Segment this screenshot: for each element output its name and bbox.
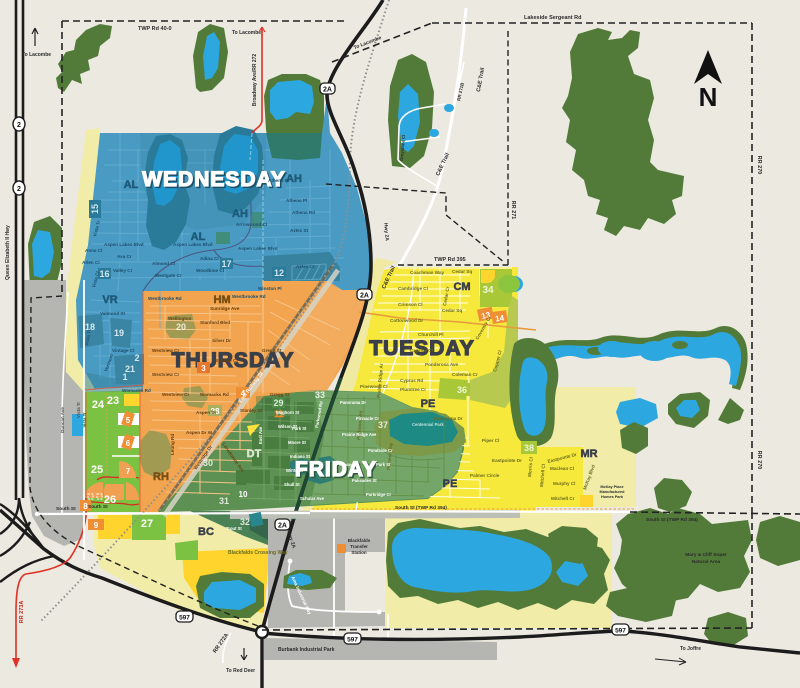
- svg-text:Moore St: Moore St: [288, 440, 307, 445]
- svg-text:Schular Ave: Schular Ave: [300, 496, 325, 501]
- svg-text:Vintage Cl: Vintage Cl: [112, 348, 134, 353]
- svg-text:To Lacombe: To Lacombe: [22, 52, 51, 58]
- svg-text:Sunrise Cl: Sunrise Cl: [215, 358, 238, 363]
- svg-text:TWP Rd 395: TWP Rd 395: [434, 257, 466, 263]
- svg-text:Womacks Rd: Womacks Rd: [122, 388, 151, 393]
- svg-text:Valmond St: Valmond St: [100, 311, 125, 316]
- svg-text:34: 34: [482, 285, 494, 296]
- svg-text:Ponderosa Ave: Ponderosa Ave: [425, 362, 459, 367]
- svg-text:20: 20: [176, 322, 186, 332]
- svg-text:2: 2: [17, 186, 21, 193]
- svg-text:South St (TWP Rd 394): South St (TWP Rd 394): [646, 517, 698, 523]
- svg-text:South St: South St: [56, 506, 76, 512]
- svg-text:PE: PE: [443, 478, 458, 490]
- svg-text:Sunridge Ave: Sunridge Ave: [210, 306, 240, 311]
- svg-text:McKay Place: McKay Place: [600, 485, 623, 489]
- svg-text:RR 271: RR 271: [510, 201, 516, 220]
- svg-text:AL: AL: [124, 179, 139, 191]
- svg-text:5: 5: [126, 416, 131, 425]
- svg-text:16: 16: [99, 269, 109, 279]
- svg-text:RH: RH: [153, 471, 169, 483]
- svg-text:Cottonwood Dr: Cottonwood Dr: [390, 318, 423, 323]
- svg-text:DT: DT: [247, 448, 262, 460]
- svg-text:Almond Ct: Almond Ct: [152, 261, 176, 266]
- svg-text:RR 273A: RR 273A: [19, 601, 25, 624]
- svg-text:Cyprus Rd: Cyprus Rd: [400, 378, 423, 383]
- svg-text:MR: MR: [580, 448, 597, 460]
- svg-text:12: 12: [274, 268, 284, 278]
- svg-text:597: 597: [615, 628, 626, 635]
- svg-text:BC: BC: [198, 526, 214, 538]
- svg-text:25: 25: [91, 464, 103, 476]
- svg-text:Station: Station: [351, 550, 367, 555]
- svg-text:VR: VR: [102, 294, 117, 306]
- svg-text:Westbrooke Rd: Westbrooke Rd: [148, 296, 182, 301]
- svg-text:AH: AH: [232, 208, 248, 220]
- svg-text:15: 15: [90, 204, 100, 214]
- svg-text:2: 2: [17, 122, 21, 129]
- svg-text:Manufactured: Manufactured: [600, 490, 626, 494]
- svg-text:Westview Cr: Westview Cr: [162, 392, 189, 397]
- svg-text:24: 24: [92, 399, 105, 411]
- svg-text:2A: 2A: [360, 293, 369, 300]
- svg-text:Blackfalds: Blackfalds: [348, 538, 371, 543]
- svg-text:Panorama Dr: Panorama Dr: [434, 416, 463, 421]
- svg-text:Burbank Industrial Park: Burbank Industrial Park: [278, 647, 335, 653]
- svg-text:Maclean Cl: Maclean Cl: [550, 466, 574, 471]
- svg-text:Anna Cl: Anna Cl: [85, 248, 102, 253]
- svg-text:CM: CM: [453, 281, 470, 293]
- svg-text:Shull St: Shull St: [284, 482, 300, 487]
- svg-text:Athena Rd: Athena Rd: [292, 210, 315, 215]
- svg-text:WEDNESDAY: WEDNESDAY: [142, 168, 286, 191]
- svg-text:Plumtree Cr: Plumtree Cr: [400, 387, 426, 392]
- svg-text:Palmer Circle: Palmer Circle: [470, 473, 500, 478]
- svg-text:Lakeside Sergeant Rd: Lakeside Sergeant Rd: [524, 15, 581, 21]
- svg-text:Park St: Park St: [376, 462, 391, 467]
- svg-text:Parkridge Cr: Parkridge Cr: [366, 492, 392, 497]
- svg-text:South St: South St: [88, 504, 108, 510]
- svg-text:Winto St: Winto St: [286, 468, 304, 473]
- svg-text:Broadway Ave/RR 272: Broadway Ave/RR 272: [252, 54, 258, 107]
- svg-text:TWP Rd 40-0: TWP Rd 40-0: [138, 26, 172, 32]
- svg-text:Athena Pl: Athena Pl: [286, 198, 307, 203]
- svg-text:Vista Tr: Vista Tr: [76, 402, 81, 418]
- svg-text:Wellington: Wellington: [168, 316, 192, 321]
- svg-text:Murphy Cl: Murphy Cl: [553, 481, 575, 486]
- svg-text:Homes Park: Homes Park: [601, 495, 624, 499]
- svg-text:Ava Cr: Ava Cr: [117, 254, 132, 259]
- svg-text:Waghorn St: Waghorn St: [276, 410, 300, 415]
- svg-text:37: 37: [378, 420, 388, 430]
- svg-text:38: 38: [524, 443, 534, 453]
- svg-text:Leung Rd: Leung Rd: [170, 434, 175, 455]
- svg-text:Mitchell Cr: Mitchell Cr: [551, 496, 575, 501]
- svg-text:Cedar Sq: Cedar Sq: [452, 269, 472, 274]
- svg-text:Arrowwood Cl: Arrowwood Cl: [236, 222, 267, 227]
- svg-text:Winston Pl: Winston Pl: [258, 286, 282, 291]
- svg-text:Coleman Cr: Coleman Cr: [452, 372, 478, 377]
- svg-text:Adina Cl: Adina Cl: [200, 256, 219, 261]
- svg-text:Duncan Ave: Duncan Ave: [60, 407, 65, 433]
- svg-text:Aspen Lakes Blvd: Aspen Lakes Blvd: [238, 246, 278, 251]
- svg-text:Wilson St: Wilson St: [278, 424, 298, 429]
- svg-text:Aspen Dr W: Aspen Dr W: [186, 430, 213, 435]
- svg-text:Blackfalds Crossing Way: Blackfalds Crossing Way: [228, 550, 288, 556]
- svg-text:Vista Tr: Vista Tr: [82, 412, 87, 427]
- svg-text:Aspen Dr: Aspen Dr: [196, 410, 217, 415]
- svg-text:Woodbine Cl: Woodbine Cl: [196, 268, 224, 273]
- svg-text:HM: HM: [213, 294, 230, 306]
- svg-text:Stanley St: Stanley St: [240, 408, 263, 413]
- svg-text:Indiana St: Indiana St: [290, 454, 311, 459]
- svg-text:2: 2: [134, 353, 139, 363]
- svg-text:9: 9: [94, 521, 99, 530]
- svg-text:29: 29: [273, 398, 283, 408]
- svg-text:East Ave: East Ave: [258, 426, 263, 444]
- svg-text:Eastpointe Dr: Eastpointe Dr: [492, 458, 522, 463]
- svg-text:Trout St: Trout St: [226, 526, 242, 531]
- svg-text:Stanford Blvd: Stanford Blvd: [200, 320, 230, 325]
- svg-text:PE: PE: [421, 398, 436, 410]
- svg-text:1: 1: [122, 372, 127, 382]
- svg-text:Gregg St: Gregg St: [270, 392, 290, 397]
- svg-text:Westview Cr: Westview Cr: [152, 372, 179, 377]
- svg-text:6: 6: [126, 439, 131, 448]
- svg-text:Silver Dr: Silver Dr: [212, 338, 231, 343]
- svg-text:10: 10: [239, 490, 248, 499]
- svg-text:Centennial Park: Centennial Park: [412, 422, 444, 427]
- svg-text:597: 597: [179, 615, 190, 622]
- svg-text:To Joffre: To Joffre: [680, 646, 701, 652]
- svg-text:7: 7: [126, 467, 131, 476]
- svg-text:Prairie Ridge Ave: Prairie Ridge Ave: [342, 432, 377, 437]
- svg-text:14: 14: [495, 313, 506, 323]
- svg-text:Transfer: Transfer: [350, 544, 368, 549]
- svg-text:Aztec Cr: Aztec Cr: [296, 264, 315, 269]
- svg-text:Valley Cr: Valley Cr: [113, 268, 133, 273]
- svg-text:23: 23: [107, 395, 119, 407]
- svg-text:Aspen Lakes Blvd: Aspen Lakes Blvd: [173, 242, 213, 247]
- svg-text:Caprice Cl: Caprice Cl: [410, 348, 433, 353]
- svg-text:36: 36: [457, 385, 467, 395]
- svg-text:Natural Area: Natural Area: [692, 559, 721, 565]
- svg-text:33: 33: [315, 390, 325, 400]
- svg-text:27: 27: [141, 518, 153, 530]
- svg-text:Westgate Cr: Westgate Cr: [155, 273, 182, 278]
- svg-text:To Lacombe: To Lacombe: [232, 30, 261, 36]
- svg-text:Pondside Cr: Pondside Cr: [368, 448, 393, 453]
- svg-text:597: 597: [347, 637, 358, 644]
- svg-text:South St (TWP Rd 394): South St (TWP Rd 394): [395, 505, 447, 511]
- svg-text:Panorama Dr: Panorama Dr: [340, 400, 366, 405]
- svg-text:Gregg St: Gregg St: [262, 348, 282, 353]
- svg-text:Crimson Cl: Crimson Cl: [398, 302, 423, 307]
- svg-text:Athens Pl: Athens Pl: [268, 178, 289, 183]
- svg-text:Pinnacle Cr: Pinnacle Cr: [356, 416, 379, 421]
- svg-text:RR 270: RR 270: [756, 156, 762, 175]
- svg-text:Aspen Lakes Blvd: Aspen Lakes Blvd: [104, 242, 144, 247]
- svg-text:Cambridge Cl: Cambridge Cl: [398, 286, 428, 291]
- svg-text:Aztec St: Aztec St: [290, 228, 309, 233]
- svg-text:Palisades St: Palisades St: [352, 478, 377, 483]
- svg-text:Coachman Way: Coachman Way: [410, 270, 444, 275]
- svg-text:19: 19: [114, 328, 124, 338]
- svg-text:N: N: [699, 82, 718, 112]
- svg-text:3: 3: [201, 364, 206, 373]
- svg-text:Womacks Rd: Womacks Rd: [200, 392, 229, 397]
- svg-text:2A: 2A: [278, 523, 287, 530]
- svg-text:2A: 2A: [323, 87, 332, 94]
- svg-text:Pinewood Cl: Pinewood Cl: [360, 384, 388, 389]
- svg-text:RR 270: RR 270: [756, 451, 762, 470]
- svg-text:Westview Cr: Westview Cr: [152, 348, 179, 353]
- svg-text:31: 31: [219, 496, 229, 506]
- svg-text:Mary & Cliff Soper: Mary & Cliff Soper: [685, 552, 727, 558]
- svg-text:Churchill Pl: Churchill Pl: [418, 332, 444, 337]
- svg-text:Cedar Sq: Cedar Sq: [442, 308, 462, 313]
- svg-text:Westbrooke Rd: Westbrooke Rd: [232, 294, 266, 299]
- svg-text:Portway Cl: Portway Cl: [336, 462, 358, 467]
- svg-text:Arlen Cl: Arlen Cl: [82, 260, 100, 265]
- svg-text:Queen Elizabeth II Hwy: Queen Elizabeth II Hwy: [5, 225, 11, 280]
- svg-text:Piper Cl: Piper Cl: [482, 438, 499, 443]
- svg-text:To Red Deer: To Red Deer: [226, 668, 255, 674]
